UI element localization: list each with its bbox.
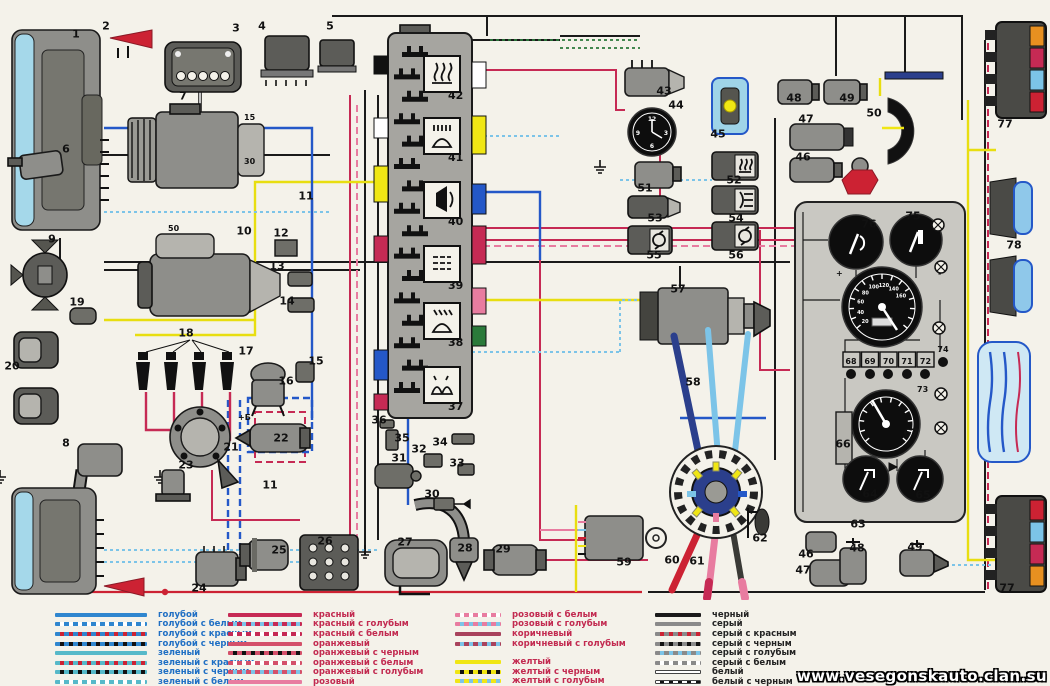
legend-item: серый с голубым [655, 648, 797, 658]
wire-color-sample [228, 613, 302, 617]
headlight-left-front [12, 30, 109, 230]
speedometer: 20406080100120140160 [842, 267, 922, 347]
connector-26 [300, 535, 358, 590]
legend-item: зеленый с белым [55, 677, 254, 686]
wire-color-sample [655, 651, 701, 655]
wiper-motor-27 [385, 540, 447, 594]
horn-9 [11, 240, 67, 310]
small-devices-30-36 [375, 420, 474, 510]
legend-item: оранжевый с голубым [228, 668, 423, 678]
legend-label: красный с белым [313, 629, 399, 639]
wire-color-sample [228, 642, 302, 646]
legend-label: коричневый с голубым [512, 639, 626, 649]
legend-label: красный с голубым [313, 619, 409, 629]
legend-group-2: розовый с белымрозовый с голубымкоричнев… [455, 610, 626, 686]
underhood-lamp [842, 170, 878, 194]
steering-column-switches [670, 330, 762, 598]
wire-color-sample [55, 642, 147, 646]
relay-4 [261, 36, 313, 86]
wiring-diagram-page: 15 30 50 [0, 0, 1050, 686]
speedometer-scale-number: 80 [862, 291, 869, 297]
legend-item: белый с черным [655, 677, 797, 686]
cigarette-lighter-45 [712, 78, 748, 134]
terminal-number: 71 [901, 357, 913, 366]
connector-block-3 [165, 42, 241, 92]
fuse-icon-number: 38 [448, 336, 463, 349]
terminal-number: 73 [917, 385, 928, 394]
rear-lamp-cluster-bottom-77 [985, 496, 1046, 592]
clock-number: 3 [664, 130, 668, 137]
wiring-diagram: 15 30 50 [0, 0, 1050, 600]
gauge-tick [908, 421, 913, 422]
motor-29 [484, 545, 546, 575]
legend-item: белый [655, 668, 797, 678]
switch-52-defrost [712, 152, 758, 180]
legend-group-3: черныйсерыйсерый с краснымсерый с черным… [655, 610, 797, 686]
fuse-box: 42 41 40 39 38 37 [374, 25, 486, 418]
generator-terminal-15: 15 [244, 113, 256, 122]
legend-label: зеленый [158, 648, 200, 658]
legend-item: серый с красным [655, 629, 797, 639]
wire-color-sample [55, 613, 147, 617]
legend-item: розовый с голубым [455, 620, 626, 630]
rear-lamp-cluster-top-77 [985, 22, 1046, 118]
legend-item: оранжевый с черным [228, 648, 423, 658]
legend-label: белый [712, 667, 744, 677]
legend-item: коричневый [455, 629, 626, 639]
wire-color-sample [228, 680, 302, 684]
flasher-25 [240, 538, 288, 572]
legend-item: зеленый с красным [55, 658, 254, 668]
wire-color-sample [455, 679, 501, 683]
wire-color-sample [55, 661, 147, 665]
terminal-number: 69 [864, 357, 876, 366]
legend-item: красный с белым [228, 629, 423, 639]
generator-7: 15 30 [128, 104, 264, 188]
gauge-tick [859, 421, 864, 422]
legend-label: черный [712, 610, 749, 620]
wire-color-sample [655, 632, 701, 636]
relay-51 [635, 162, 681, 188]
wire-color-sample [655, 661, 701, 665]
legend-item: желтый с голубым [455, 677, 626, 686]
wire-color-sample [228, 661, 302, 665]
side-repeater-lamps-20 [14, 332, 58, 424]
legend-label: розовый с голубым [512, 619, 607, 629]
legend-item: черный [655, 610, 797, 620]
wire-color-sample [55, 670, 147, 674]
wire-color-sample [655, 613, 701, 617]
tachometer-67 [852, 390, 920, 458]
relays-46-49-bottom [806, 532, 948, 586]
fuse-icon-number: 42 [448, 89, 463, 102]
wire-color-sample [55, 622, 147, 626]
polarity-label: + [836, 269, 843, 278]
wire-color-sample [55, 680, 147, 684]
relay-5 [318, 40, 356, 72]
legend-label: оранжевый с голубым [313, 667, 423, 677]
legend-label: оранжевый с черным [313, 648, 419, 658]
legend-label: желтый с голубым [512, 676, 605, 686]
wire-color-sample [655, 622, 701, 626]
switch-53 [628, 196, 680, 218]
legend-label: серый с красным [712, 629, 797, 639]
legend-label: серый с голубым [712, 648, 796, 658]
clock-number: 6 [650, 143, 654, 150]
terminal-number: 72 [920, 357, 931, 366]
starter-10: 50 [138, 224, 280, 316]
voltage-stabilizer-66 [836, 412, 852, 464]
license-plate-lamps-78 [990, 178, 1032, 316]
generator-terminal-30: 30 [244, 157, 256, 166]
terminal-number: 70 [883, 357, 895, 366]
legend-item: серый [655, 620, 797, 630]
fuel-pump-17 [251, 363, 285, 416]
speedometer-scale-number: 160 [896, 294, 907, 300]
connector-59 [578, 516, 666, 560]
legend-label: серый [712, 619, 743, 629]
legend-item: голубой с черным [55, 639, 254, 649]
legend-label: оранжевый [313, 639, 370, 649]
switch-54-foglight [712, 186, 758, 214]
gauge-65 [897, 456, 943, 502]
relay-24 [196, 546, 246, 586]
wire-color-sample [655, 670, 701, 674]
speedometer-scale-number: 20 [862, 319, 869, 325]
wire-color-sample [228, 670, 302, 674]
legend-label: коричневый [512, 629, 572, 639]
switch-43 [625, 60, 684, 96]
legend-group-1: красныйкрасный с голубымкрасный с белымо… [228, 610, 423, 686]
legend-label: белый с черным [712, 677, 793, 686]
wire-color-sample [55, 651, 147, 655]
speedometer-scale-number: 60 [857, 300, 864, 306]
wire-color-sample [455, 670, 501, 674]
wire-color-sample [655, 680, 701, 684]
legend-group-0: голубойголубой с белымголубой с краснымг… [55, 610, 254, 686]
legend-item: голубой с красным [55, 629, 254, 639]
fuse-icon-number: 40 [448, 215, 464, 228]
legend-item: зеленый с черным [55, 668, 254, 678]
wire-color-sample [455, 660, 501, 664]
brake-switch-23 [156, 470, 190, 501]
heated-rear-window [978, 342, 1030, 462]
watermark: www.vesegonskauto.clan.su [797, 667, 1047, 685]
terminal-number: 74 [937, 345, 949, 354]
terminal-number: 68 [845, 357, 857, 366]
legend-item: розовый [228, 677, 423, 686]
switch-55-fan [628, 226, 672, 254]
wire-color-sample [455, 622, 501, 626]
speedometer-scale-number: 40 [857, 310, 864, 316]
legend-label: желтый [512, 657, 551, 667]
legend-label: розовый [313, 677, 355, 686]
wire-color-sample [55, 632, 147, 636]
instrument-cluster-63: + - + - 20406080100120140160 68 69 70 71… [795, 202, 965, 522]
clock-44: 12 3 6 9 [628, 108, 676, 156]
starter-terminal-50: 50 [168, 224, 180, 233]
legend-item: зеленый [55, 648, 254, 658]
fuse-icon-number: 41 [448, 151, 463, 164]
coil-terminal-label: +Б [238, 413, 251, 422]
fuse-icon-number: 39 [448, 279, 463, 292]
wire-color-sample [455, 613, 501, 617]
legend-item: желтый [455, 657, 626, 667]
wire-color-sample [228, 632, 302, 636]
wire-color-sample [455, 642, 501, 646]
switch-56-fan [712, 222, 758, 250]
speedometer-scale-number: 140 [888, 286, 899, 292]
legend-item: серый с черным [655, 639, 797, 649]
legend-item: коричневый с голубым [455, 639, 626, 649]
turn-repeater-symbol-2 [104, 578, 144, 596]
legend-item: красный с голубым [228, 620, 423, 630]
wire-color-sample [228, 622, 302, 626]
wire-color-sample [655, 642, 701, 646]
legend-item: оранжевый [228, 639, 423, 649]
wire-color-sample [455, 632, 501, 636]
wire-color-sample [228, 651, 302, 655]
legend-item: голубой с белым [55, 620, 254, 630]
gauge-64 [843, 456, 889, 502]
turn-repeater-symbol [110, 30, 152, 58]
clock-number: 9 [636, 130, 640, 137]
fuse-icon-number: 37 [448, 400, 463, 413]
headlight-left-second [12, 488, 104, 594]
